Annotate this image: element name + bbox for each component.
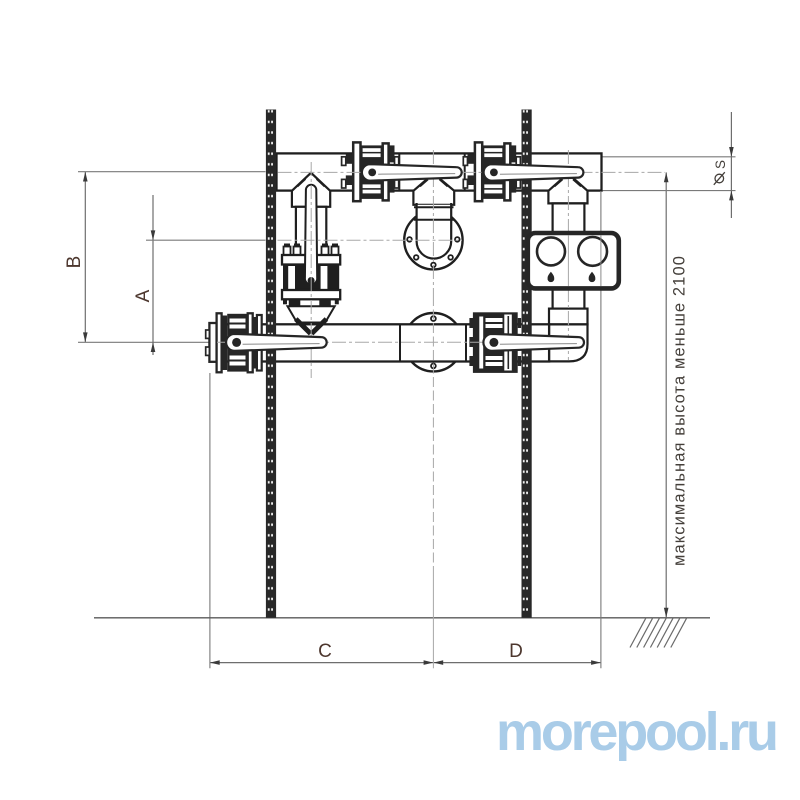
- svg-text:C: C: [318, 641, 332, 662]
- svg-text:A: A: [133, 289, 154, 302]
- svg-text:максимальная высота меньше: максимальная высота меньше 2100: [671, 255, 689, 566]
- svg-text:B: B: [64, 256, 85, 269]
- svg-text:morepool.ru: morepool.ru: [496, 702, 776, 762]
- svg-text:D: D: [509, 641, 523, 662]
- svg-text:S: S: [713, 160, 728, 169]
